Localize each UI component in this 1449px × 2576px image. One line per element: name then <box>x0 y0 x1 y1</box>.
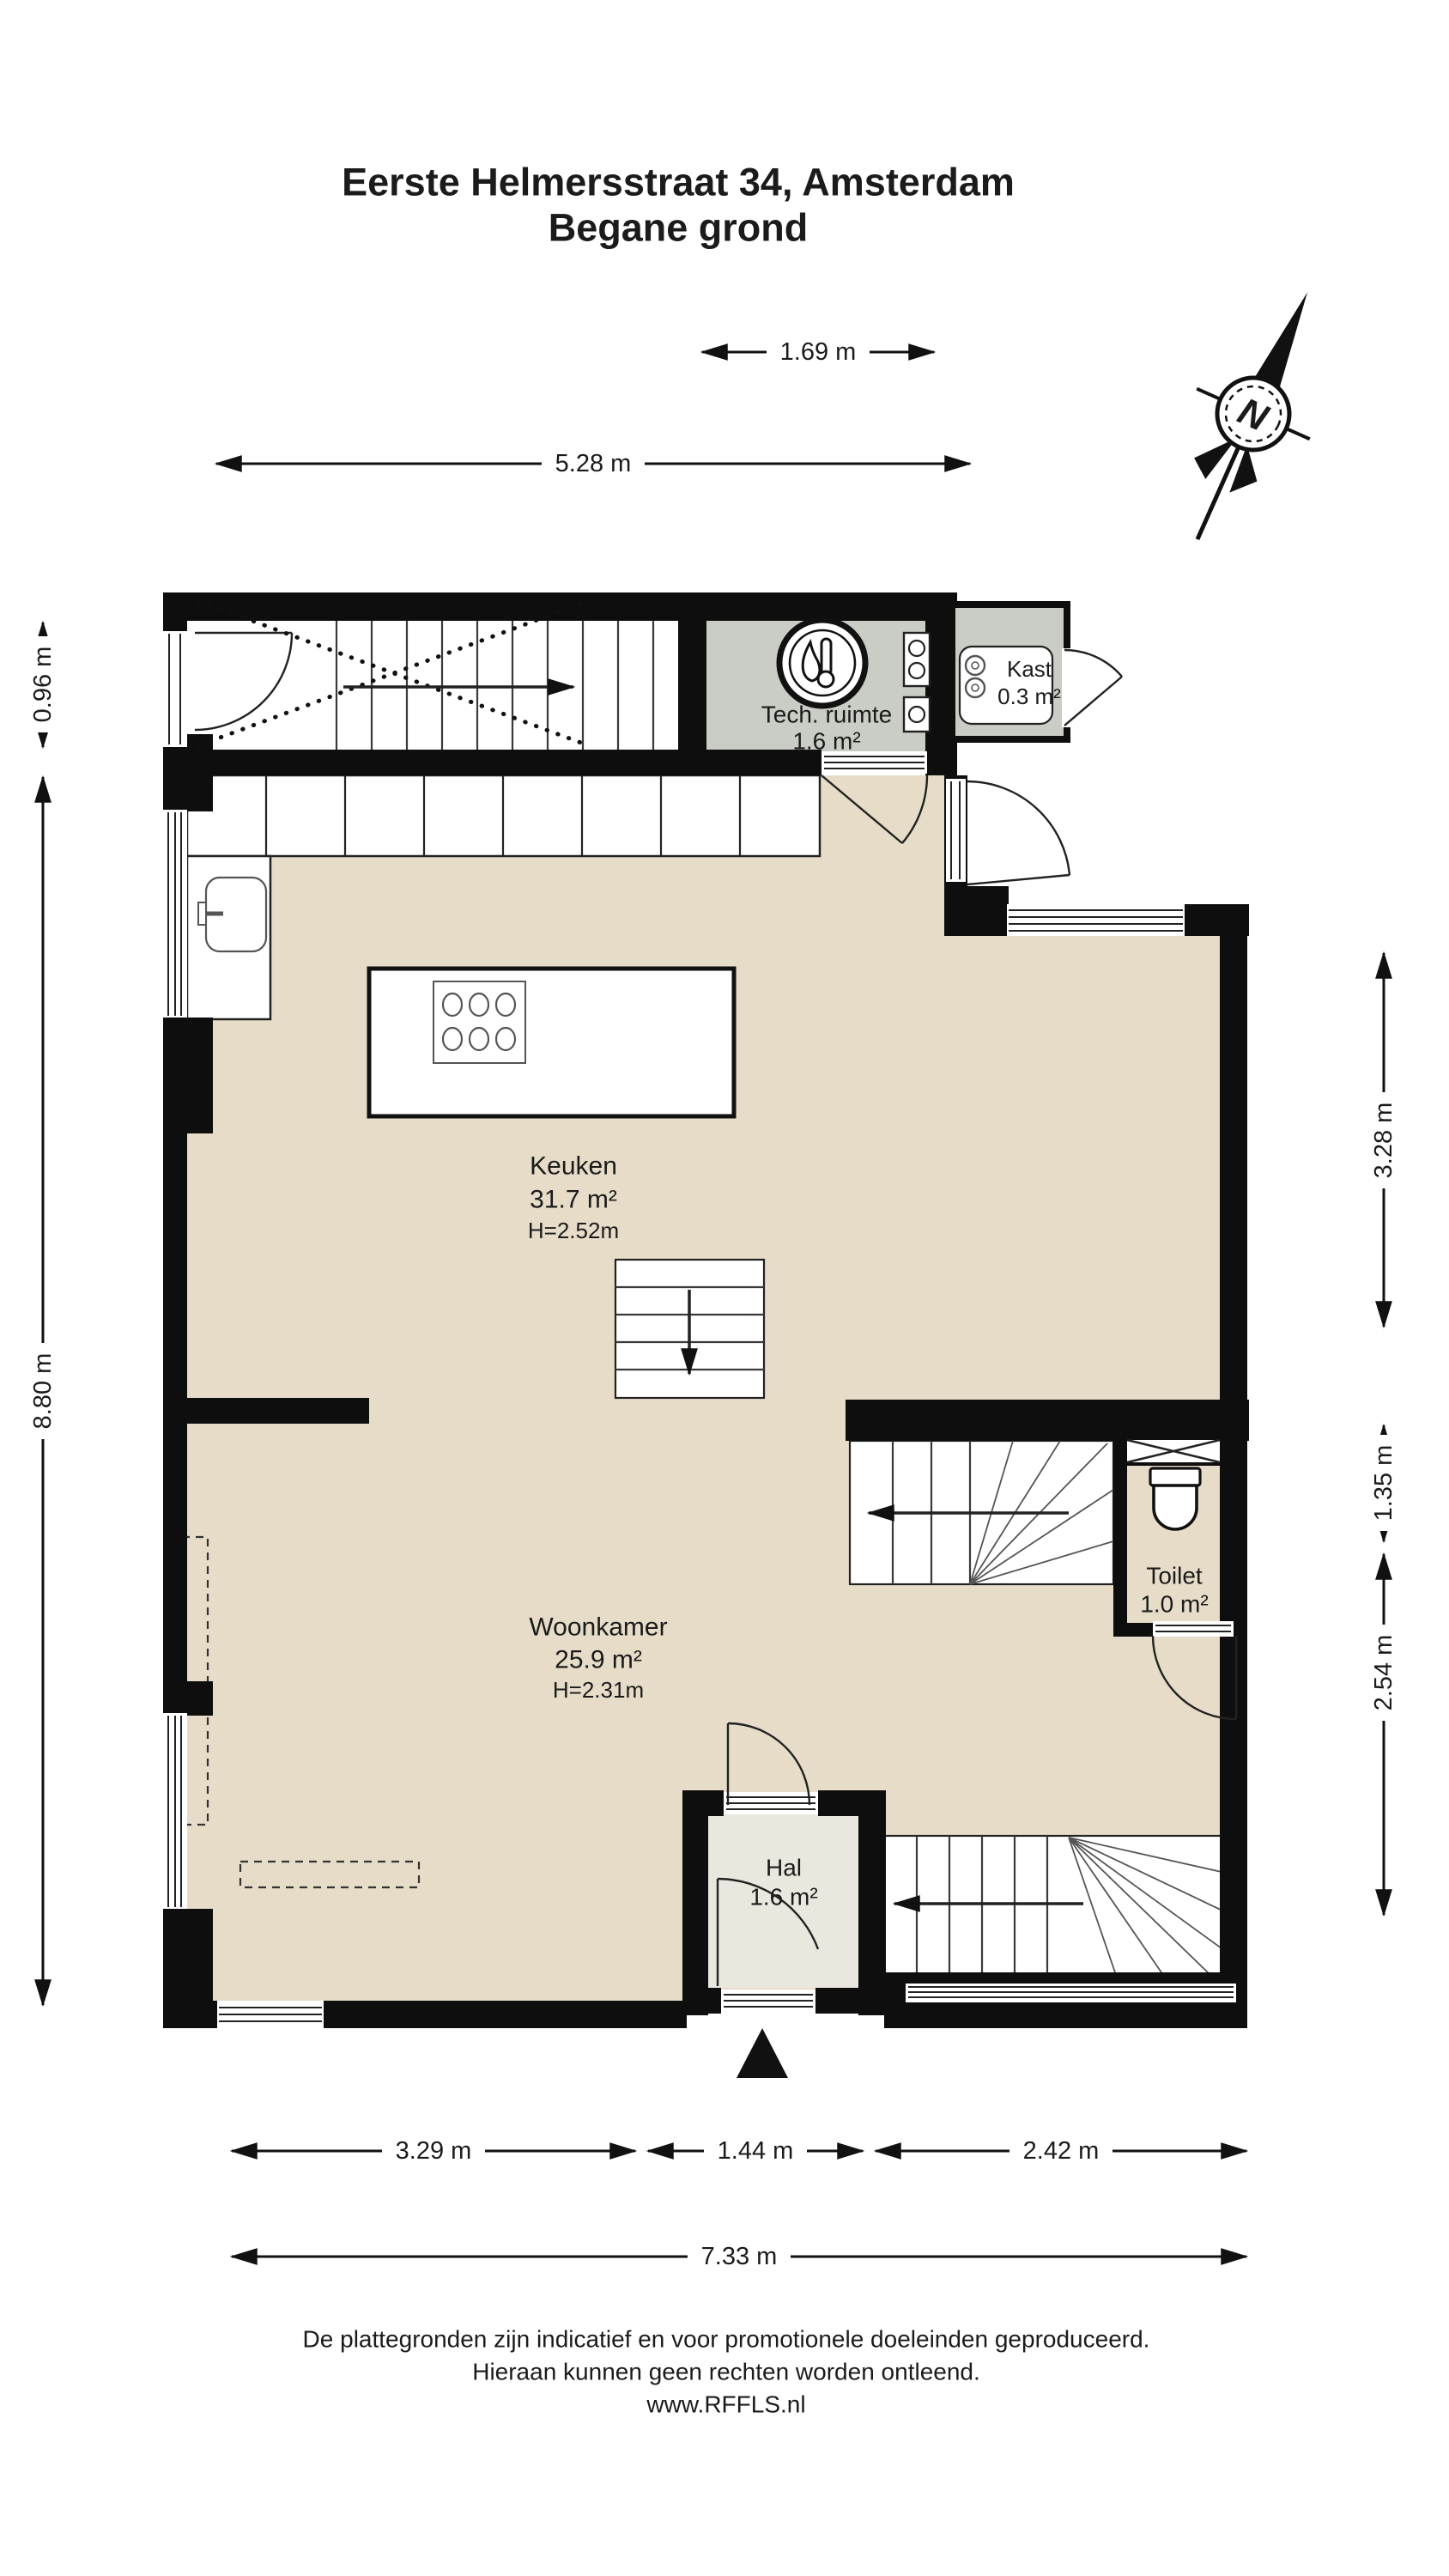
room-label-toilet: Toilet <box>1146 1563 1203 1589</box>
tap-icon <box>198 902 206 925</box>
room-area-hal: 1.6 m² <box>749 1884 817 1911</box>
floorplan-page: Keuken 31.7 m² H=2.52m Woonkamer 25.9 m²… <box>0 0 1449 2576</box>
svg-text:7.33 m: 7.33 m <box>701 2243 778 2270</box>
door-opening-kast <box>1062 648 1070 727</box>
shaft-marking <box>1127 1440 1220 1462</box>
dimension-right-middle: 1.35 m <box>1368 1425 1399 1541</box>
svg-text:3.29 m: 3.29 m <box>396 2137 472 2165</box>
room-label-kast: Kast <box>1007 656 1052 682</box>
window-left-upper <box>163 810 187 1018</box>
kitchen-island <box>369 969 734 1116</box>
room-label-tech: Tech. ruimte <box>761 702 893 728</box>
footer-line-1: De plattegronden zijn indicatief en voor… <box>303 2326 1150 2353</box>
room-label-hal: Hal <box>766 1855 802 1881</box>
footer-line-2: Hieraan kunnen geen rechten worden ontle… <box>472 2359 980 2385</box>
floorplan-drawing: Keuken 31.7 m² H=2.52m Woonkamer 25.9 m²… <box>0 0 1449 2576</box>
front-door-opening-corridor <box>163 631 187 747</box>
stair-keuken-step <box>615 1260 764 1398</box>
window-left-lower <box>163 1713 187 1909</box>
hob-icon <box>433 981 525 1063</box>
window-bottom-right <box>906 1984 1236 2002</box>
door-opening-hal-entrance <box>721 1990 815 2012</box>
sink-counter <box>187 856 270 1019</box>
svg-text:3.28 m: 3.28 m <box>1370 1103 1397 1179</box>
room-ceiling-keuken: H=2.52m <box>528 1218 619 1243</box>
door-opening-tech <box>822 751 927 774</box>
title-address: Eerste Helmersstraat 34, Amsterdam <box>342 161 1015 204</box>
window-right-upper <box>1007 904 1185 936</box>
svg-text:2.42 m: 2.42 m <box>1023 2137 1100 2165</box>
svg-text:0.96 m: 0.96 m <box>29 647 57 723</box>
dimension-left-top: 0.96 m <box>27 623 58 747</box>
svg-text:5.28 m: 5.28 m <box>555 450 632 477</box>
room-area-toilet: 1.0 m² <box>1140 1591 1208 1618</box>
room-ceiling-woonkamer: H=2.31m <box>553 1677 644 1703</box>
room-area-woonkamer: 25.9 m² <box>555 1646 642 1674</box>
svg-text:2.54 m: 2.54 m <box>1370 1635 1397 1711</box>
window-bottom-left <box>217 2002 324 2026</box>
room-area-tech: 1.6 m² <box>792 728 860 755</box>
room-area-keuken: 31.7 m² <box>530 1186 617 1214</box>
room-label-keuken: Keuken <box>530 1152 617 1181</box>
svg-text:1.69 m: 1.69 m <box>780 338 857 366</box>
boiler-icon <box>779 620 865 706</box>
stair-bottom-right <box>884 1836 1240 1975</box>
title-floor: Begane grond <box>549 206 809 250</box>
door-opening-toilet <box>1153 1621 1234 1637</box>
kitchen-counter <box>187 775 820 856</box>
room-area-kast: 0.3 m² <box>997 683 1061 709</box>
footer-website: www.RFFLS.nl <box>646 2391 805 2418</box>
room-label-woonkamer: Woonkamer <box>529 1613 667 1642</box>
svg-text:8.80 m: 8.80 m <box>29 1353 57 1430</box>
stair-winder-middle <box>850 1441 1113 1584</box>
door-opening-keuken-right <box>946 779 966 882</box>
electrical-panel-icon <box>904 633 930 732</box>
toilet-fixture-icon <box>1150 1468 1200 1529</box>
svg-text:1.35 m: 1.35 m <box>1370 1445 1397 1522</box>
door-opening-hal-top <box>724 1792 818 1814</box>
svg-text:1.44 m: 1.44 m <box>718 2137 794 2165</box>
